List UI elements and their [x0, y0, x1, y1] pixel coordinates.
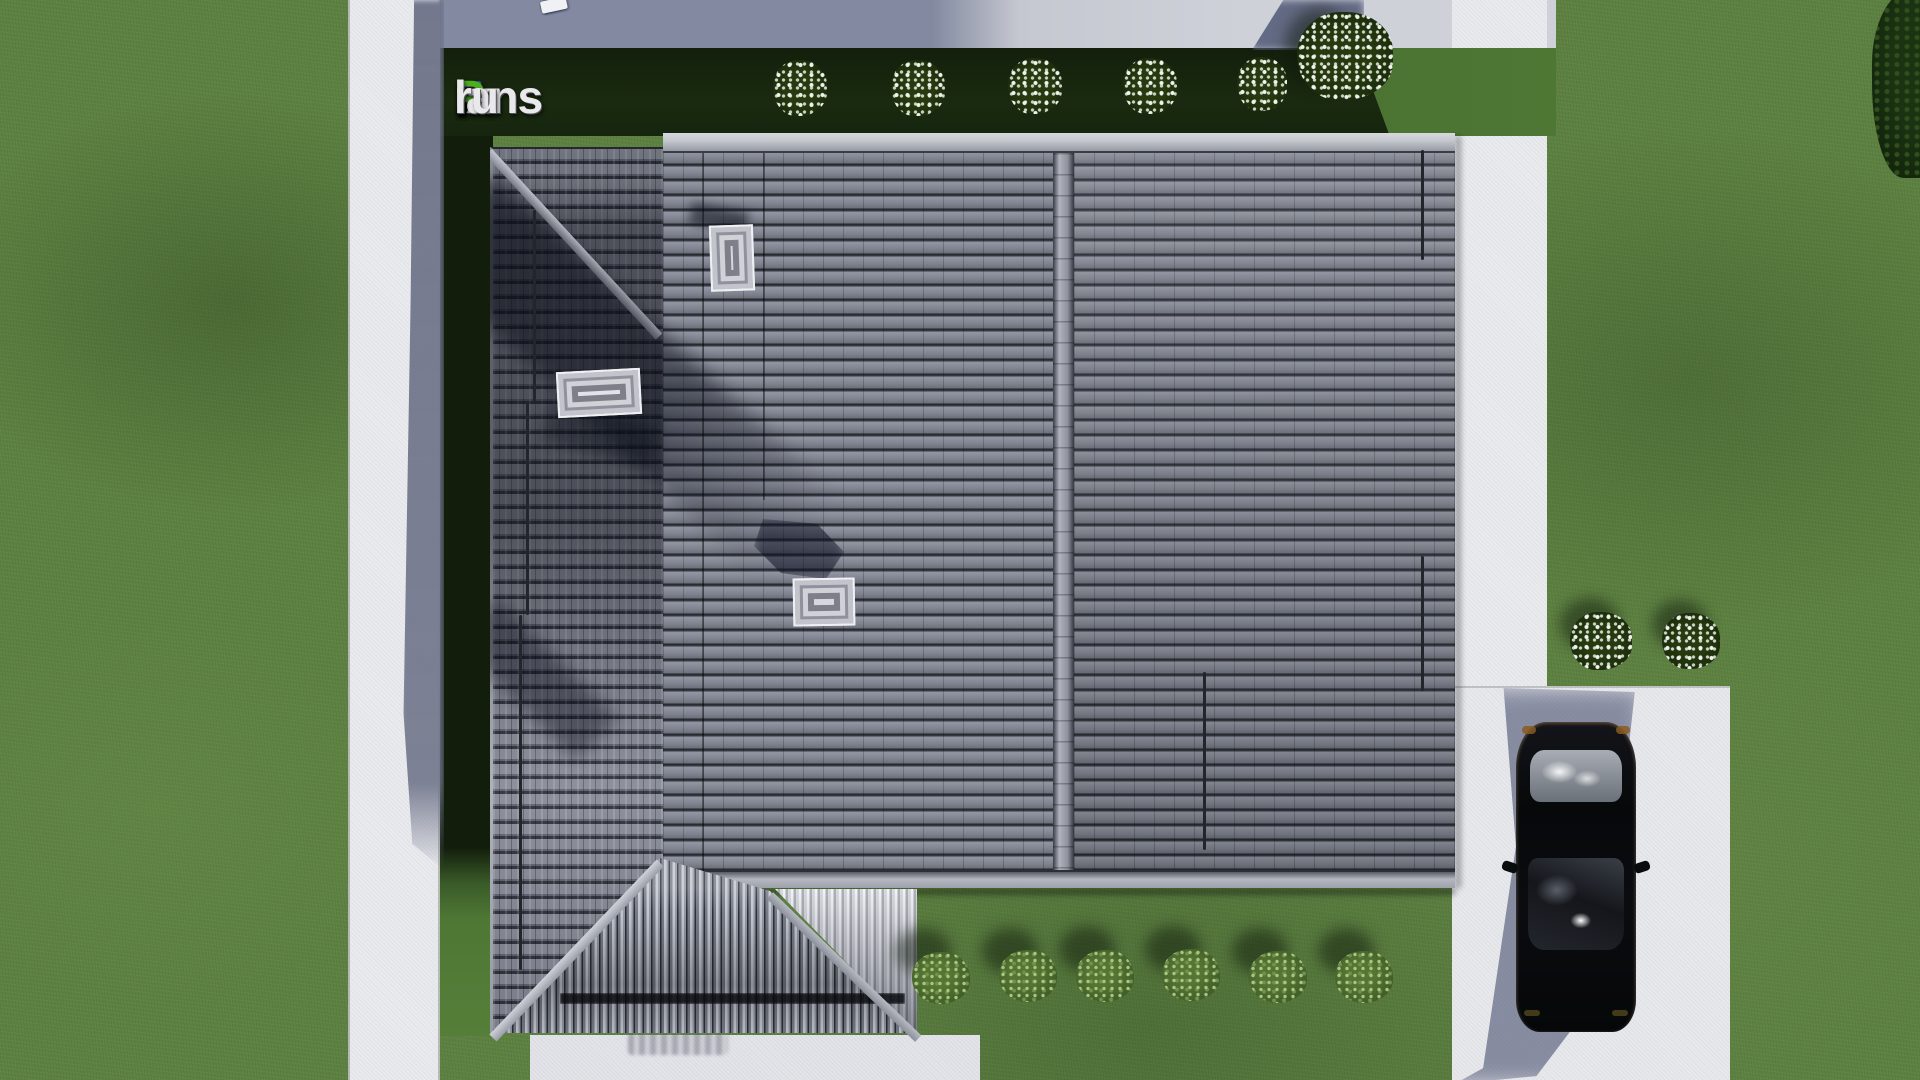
- green-bush: [912, 952, 970, 1004]
- faint-pavement-marking: [628, 1033, 728, 1055]
- chimney: [709, 224, 755, 291]
- roof-rod: [1421, 150, 1424, 260]
- green-bush: [1335, 951, 1393, 1003]
- corner-foliage: [1872, 0, 1920, 178]
- flower-bush: [891, 60, 945, 116]
- roof-ridge: [1053, 153, 1074, 870]
- shaded-lawn-left: [440, 136, 493, 1036]
- porch-roof-face: [490, 855, 920, 1035]
- flower-bush: [1123, 58, 1177, 114]
- headlight: [1524, 1010, 1540, 1016]
- roof-rod: [1203, 672, 1206, 850]
- car-windshield: [1528, 858, 1624, 950]
- flower-bush: [1570, 612, 1632, 670]
- taillight: [1522, 726, 1536, 734]
- flower-bush: [773, 60, 827, 116]
- roof-rod: [1421, 556, 1424, 691]
- porch-shadow-slot: [560, 993, 905, 1004]
- green-bush: [1249, 951, 1307, 1003]
- skylight: [556, 368, 642, 418]
- roof-panel-right: [1074, 153, 1455, 870]
- roof-rod: [526, 403, 529, 615]
- green-bush: [999, 950, 1057, 1002]
- black-car: [1516, 722, 1636, 1032]
- roof-rod: [533, 210, 536, 403]
- car-rear-window: [1530, 750, 1622, 802]
- roof-top-fascia: [663, 133, 1455, 153]
- large-flowering-shrub: [1297, 12, 1393, 100]
- flower-bush: [1662, 613, 1720, 669]
- skylight: [793, 577, 856, 626]
- aerial-render: FixPlans.ru: [0, 0, 1920, 1080]
- headlight: [1612, 1010, 1628, 1016]
- flower-bush: [1237, 57, 1287, 111]
- front-walkway: [530, 1035, 980, 1080]
- green-bush: [1076, 950, 1134, 1002]
- taillight: [1616, 726, 1630, 734]
- logo-segment: ru: [454, 70, 498, 124]
- flower-bush: [1008, 58, 1062, 114]
- porch-gable: [490, 855, 920, 1035]
- green-bush: [1162, 949, 1220, 1001]
- eave-shadow: [1455, 136, 1461, 888]
